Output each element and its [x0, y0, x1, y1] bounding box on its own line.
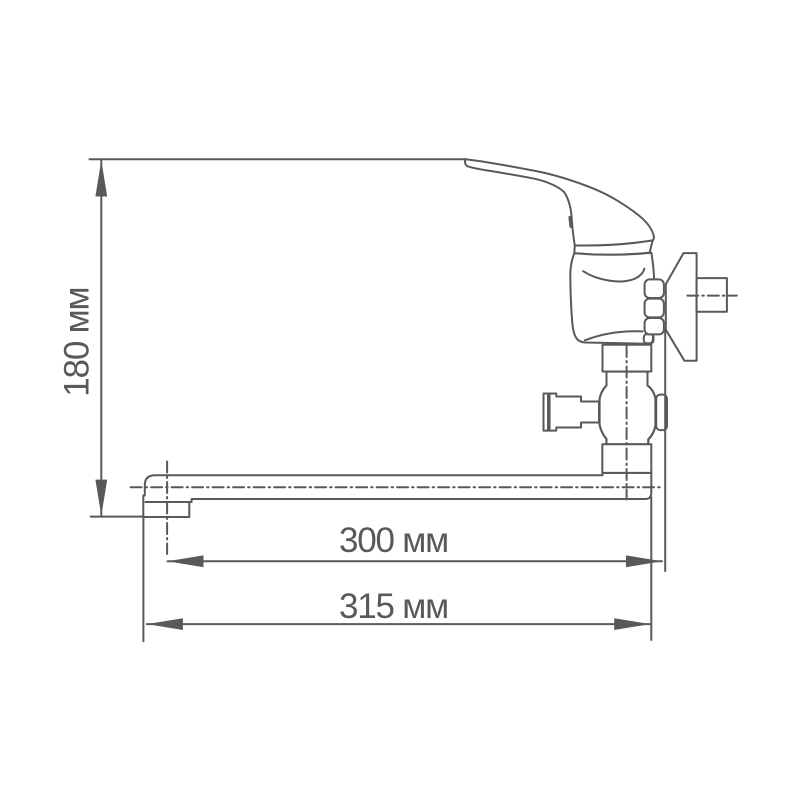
svg-text:315 мм: 315 мм [339, 587, 448, 626]
svg-text:180 мм: 180 мм [58, 288, 97, 397]
svg-text:300 мм: 300 мм [339, 521, 448, 560]
